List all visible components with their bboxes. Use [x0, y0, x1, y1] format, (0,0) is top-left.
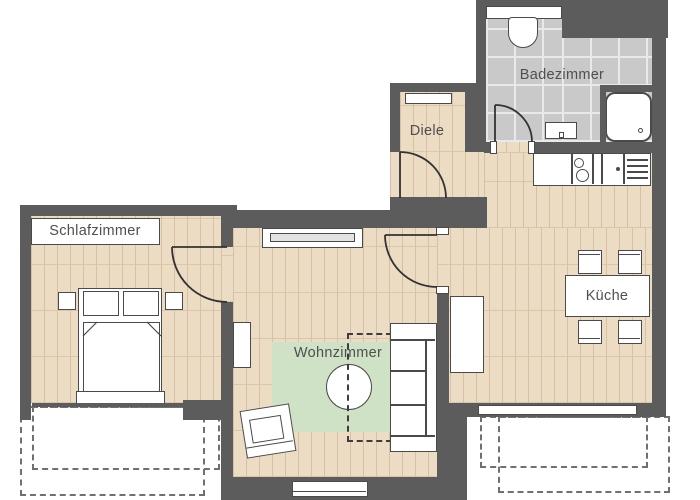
living-door-jamb-top [436, 227, 449, 235]
armchair [240, 403, 297, 458]
room-label-badezimmer: Badezimmer [520, 67, 604, 83]
wall-hall-left-upper [390, 83, 400, 152]
wall-bedroom-left [20, 205, 31, 420]
hall-entrance-threshold [390, 152, 400, 198]
bathroom-door-jamb-left [490, 141, 497, 154]
kitchen-sink-faucet-dot [616, 167, 620, 171]
nightstand-left [58, 292, 76, 310]
wall-top-right-block [562, 0, 668, 38]
wall-bathroom-bottom-right [533, 142, 665, 153]
sideboard-left [233, 322, 251, 368]
wall-bedroom-bottom-stub [183, 400, 233, 420]
counter-divider-2 [592, 154, 594, 184]
bathroom-sink-faucet [559, 132, 564, 138]
sofa-cushion-line-1 [391, 370, 425, 372]
bathroom-doorway-threshold [493, 142, 533, 153]
counter-divider-1 [571, 154, 573, 184]
kitchen-chair-bottom-left [578, 320, 602, 344]
counter-divider-3 [601, 154, 603, 184]
bedroom-doorway-threshold [221, 247, 233, 302]
shower-drain [638, 128, 643, 133]
drainer-line-2 [627, 165, 648, 167]
shower [605, 92, 652, 142]
wall-bedroom-window-sill [32, 403, 183, 407]
wall-shower-top [600, 85, 652, 92]
living-radiator-core [270, 233, 355, 242]
kitchen-chair-bottom-right [618, 320, 642, 344]
chair-back-line [579, 254, 600, 255]
wall-bedroom-top [20, 205, 237, 216]
hall-shelf [405, 93, 452, 104]
window-inner-line [293, 491, 366, 492]
chair-back-line [619, 338, 640, 339]
drainer-line-4 [627, 177, 648, 179]
bathroom-door-jamb-right [528, 141, 535, 154]
kitchen-counter [533, 153, 651, 186]
wall-right [652, 38, 666, 417]
hall-passage-floor [465, 152, 484, 198]
wall-bathroom-left [476, 0, 486, 145]
drainer-line-3 [627, 171, 648, 173]
living-bottom-window [292, 481, 368, 497]
balcony-right-inner-outline [480, 416, 648, 468]
wall-bathroom-top [478, 0, 565, 6]
room-label-schlafzimmer: Schlafzimmer [49, 223, 140, 239]
kitchen-bottom-window [478, 405, 637, 415]
room-label-wohnzimmer: Wohnzimmer [294, 345, 382, 361]
sofa-armrest-bottom-line [391, 435, 435, 437]
kitchen-chair-top-left [578, 250, 602, 274]
floor-plan: Badezimmer Diele Schlafzimmer Wohnzimmer… [0, 0, 700, 500]
pillow-left [83, 291, 119, 316]
stove-burner-small [574, 158, 584, 168]
drainer-line-1 [627, 159, 648, 161]
pillow-right [123, 291, 159, 316]
dining-sideboard [450, 296, 484, 373]
bed-blanket [83, 322, 160, 400]
sofa-armrest-top-line [391, 339, 435, 341]
wall-shower-left [600, 85, 606, 142]
room-label-diele: Diele [410, 123, 445, 139]
armchair-seat [249, 415, 284, 444]
wall-hall-left-lower [390, 198, 400, 228]
room-label-kueche: Küche [586, 288, 629, 304]
kitchen-chair-top-right [618, 250, 642, 274]
wall-hall-bottom-band [390, 197, 487, 228]
hall-floor [400, 92, 465, 198]
nightstand-right [165, 292, 183, 310]
counter-divider-4 [623, 154, 625, 184]
chair-back-line [619, 254, 640, 255]
wall-living-kitchen [437, 287, 449, 417]
chair-back-line [579, 338, 600, 339]
sofa [390, 323, 437, 452]
sofa-backrest-line [425, 339, 427, 436]
wall-hall-top [390, 83, 477, 92]
sofa-cushion-line-2 [391, 404, 425, 406]
living-door-jamb-bottom [436, 286, 449, 294]
stove-burner-large [576, 169, 589, 182]
toilet-bowl [508, 17, 538, 48]
